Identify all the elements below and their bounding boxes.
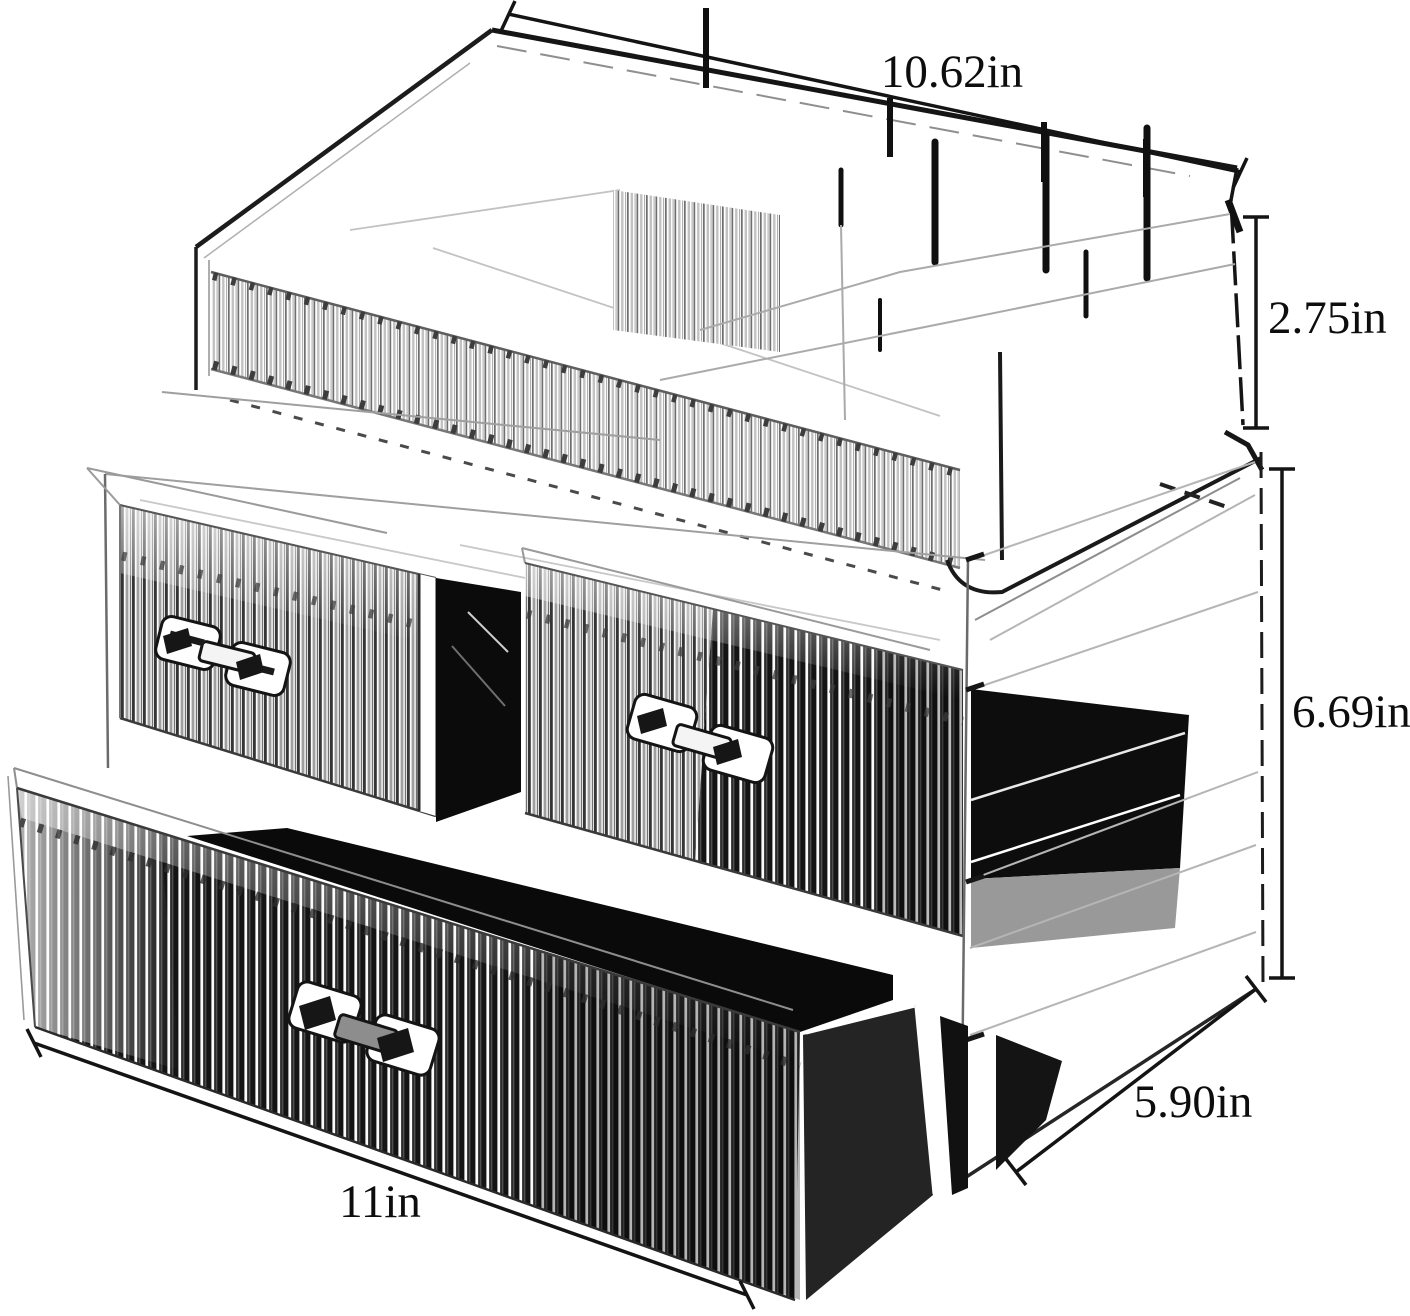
svg-text:5.90in: 5.90in xyxy=(1134,1076,1253,1128)
svg-text:6.69in: 6.69in xyxy=(1292,686,1410,738)
svg-text:11in: 11in xyxy=(339,1176,421,1228)
svg-text:2.75in: 2.75in xyxy=(1268,292,1387,344)
svg-text:10.62in: 10.62in xyxy=(881,46,1023,98)
